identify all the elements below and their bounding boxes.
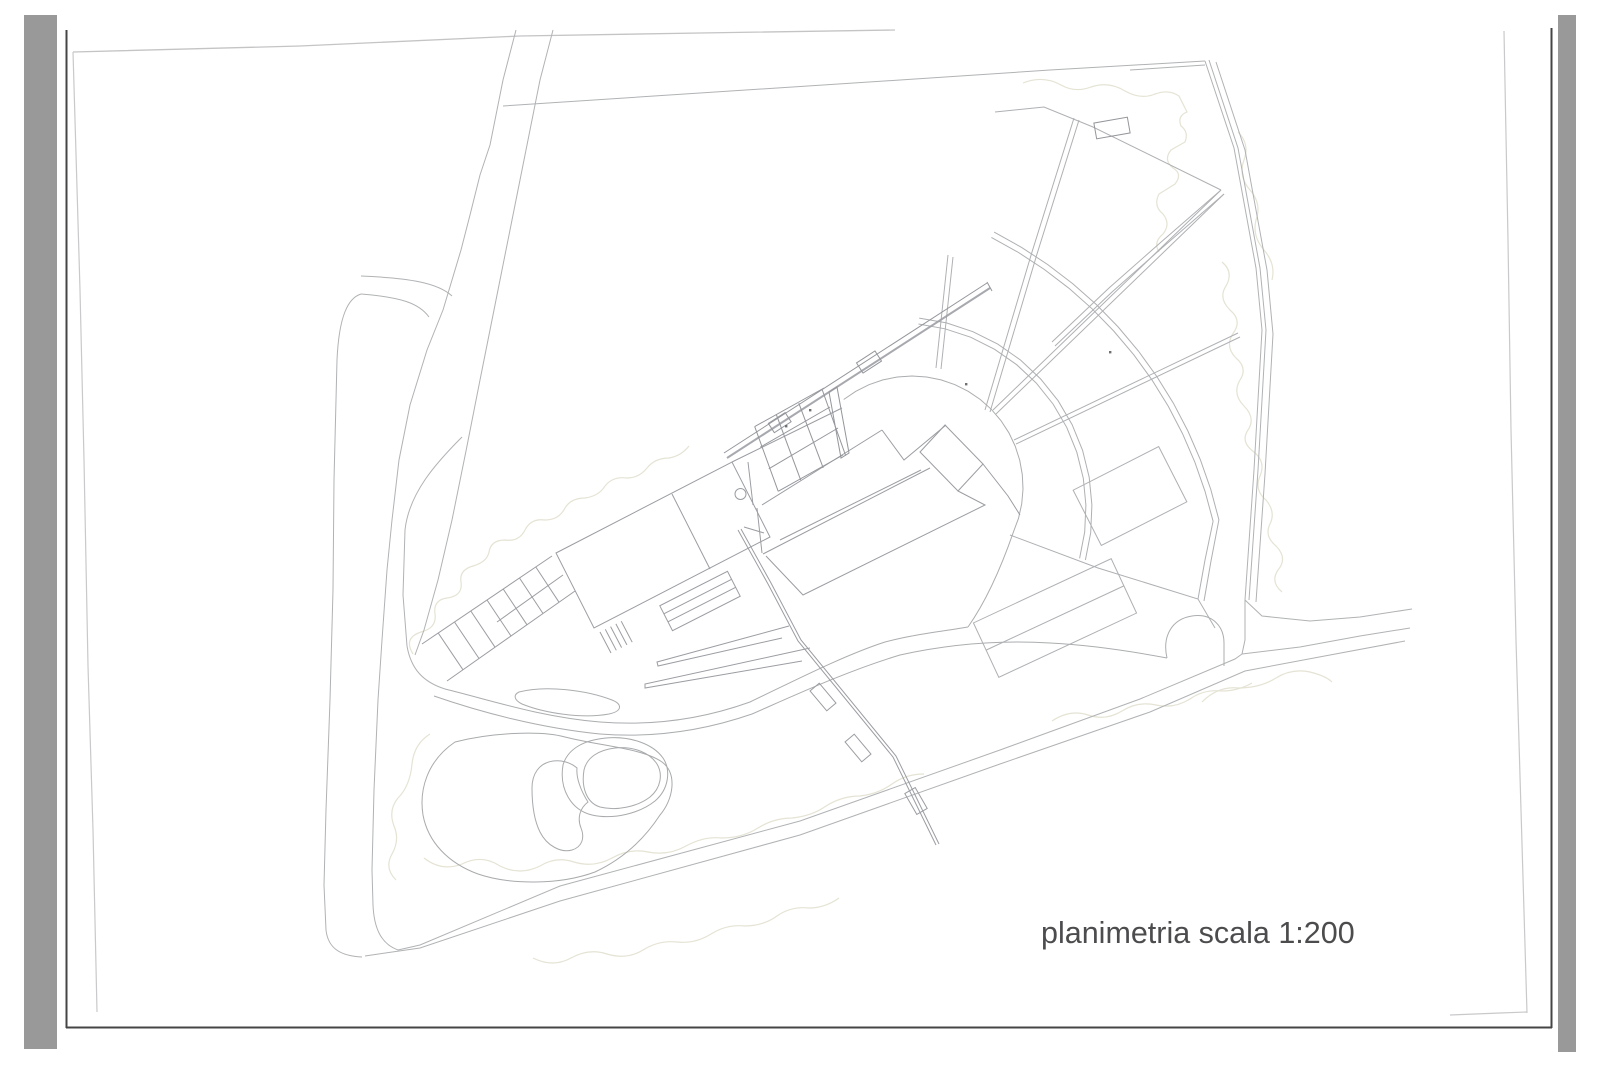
svg-text:planimetria scala 1:200: planimetria scala 1:200 — [1041, 916, 1355, 950]
